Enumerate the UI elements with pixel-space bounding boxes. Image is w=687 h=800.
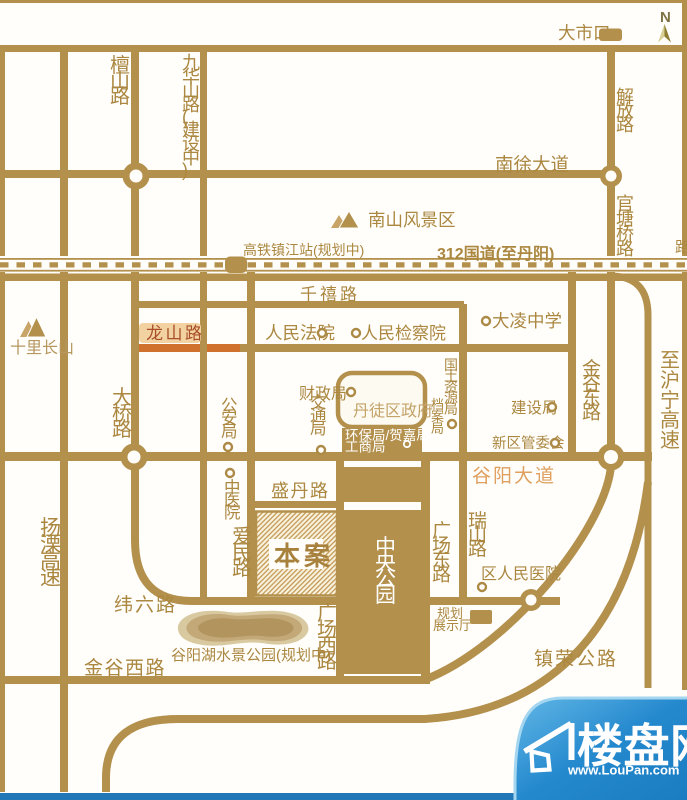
svg-text:大凌中学: 大凌中学 — [492, 311, 562, 331]
svg-text:官塘桥路: 官塘桥路 — [616, 194, 634, 259]
svg-text:中医院: 中医院 — [224, 478, 241, 522]
svg-text:盛丹路: 盛丹路 — [271, 481, 330, 501]
svg-text:南山风景区: 南山风景区 — [368, 210, 456, 230]
svg-text:N: N — [660, 9, 671, 26]
svg-text:广场西路: 广场西路 — [317, 602, 337, 673]
svg-text:金谷东路: 金谷东路 — [582, 358, 601, 424]
svg-text:谷阳湖水景公园(规划中): 谷阳湖水景公园(规划中) — [171, 647, 331, 664]
svg-text:www.LouPan.com: www.LouPan.com — [567, 763, 679, 778]
svg-text:展示厅: 展示厅 — [433, 618, 472, 633]
svg-text:本案: 本案 — [274, 541, 334, 571]
svg-text:大桥路: 大桥路 — [112, 386, 132, 441]
svg-text:扬溧高速: 扬溧高速 — [40, 517, 61, 590]
svg-text:丹徒区政府: 丹徒区政府 — [353, 402, 433, 420]
svg-text:中央公园: 中央公园 — [375, 536, 396, 607]
svg-text:广场东路: 广场东路 — [432, 520, 451, 586]
svg-text:国土资源局: 国土资源局 — [444, 357, 458, 417]
svg-text:档案局: 档案局 — [431, 397, 444, 436]
svg-text:至沪宁高速: 至沪宁高速 — [660, 350, 680, 452]
svg-text:公安局: 公安局 — [221, 397, 238, 441]
svg-text:南徐大道: 南徐大道 — [495, 154, 569, 175]
svg-text:龙山路: 龙山路 — [146, 324, 205, 343]
svg-text:瑞山路: 瑞山路 — [468, 510, 487, 560]
svg-text:工商局: 工商局 — [345, 440, 386, 455]
svg-text:檀山路: 檀山路 — [110, 54, 130, 108]
svg-text:路: 路 — [675, 239, 687, 256]
svg-text:区人民医院: 区人民医院 — [481, 565, 561, 583]
svg-text:纬六路: 纬六路 — [114, 594, 177, 616]
svg-text:人民检察院: 人民检察院 — [361, 324, 446, 343]
svg-text:高铁镇江站(规划中): 高铁镇江站(规划中) — [243, 242, 364, 258]
svg-text:312国道(至丹阳): 312国道(至丹阳) — [437, 244, 554, 263]
svg-text:镇荣公路: 镇荣公路 — [534, 648, 618, 670]
svg-text:谷阳大道: 谷阳大道 — [472, 465, 556, 487]
svg-text:千禧路: 千禧路 — [300, 285, 360, 304]
svg-text:十里长山: 十里长山 — [10, 339, 74, 357]
svg-text:交通局: 交通局 — [310, 393, 327, 438]
svg-text:金谷西路: 金谷西路 — [84, 657, 166, 679]
svg-text:爱民路: 爱民路 — [232, 525, 252, 580]
svg-text:解放路: 解放路 — [616, 87, 634, 135]
